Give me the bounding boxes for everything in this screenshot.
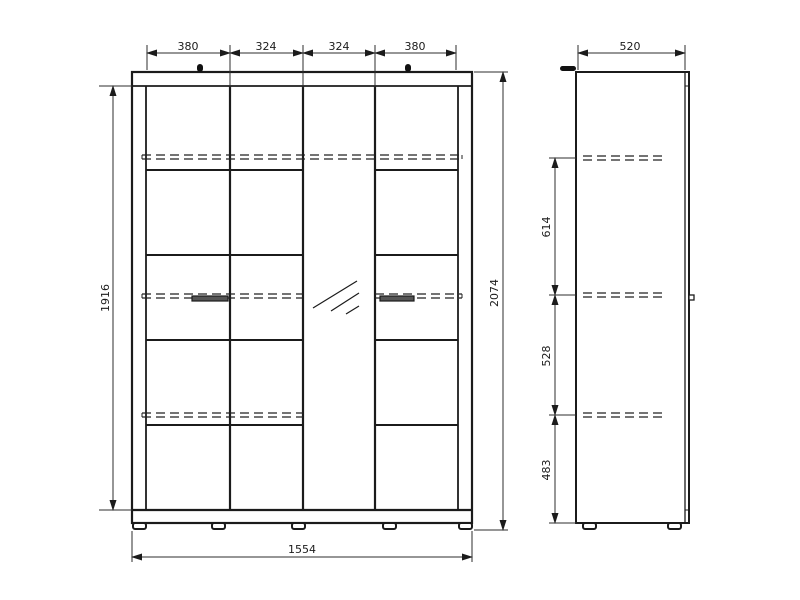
top-fitting-right: [405, 64, 411, 72]
right-door-handle: [380, 296, 414, 301]
dim-label-380-right: 380: [405, 40, 426, 53]
dim-label-1916: 1916: [99, 284, 112, 312]
left-door-handle: [192, 296, 228, 301]
dim-label-483: 483: [540, 460, 553, 481]
foot: [212, 523, 225, 529]
top-fitting-left: [197, 64, 203, 72]
mirror-slash: [346, 306, 359, 314]
side-hidden-shelves: [583, 156, 663, 417]
dim-label-614: 614: [540, 217, 553, 238]
technical-drawing-canvas: 380 324 324 380 1916 2074 1554: [0, 0, 800, 600]
side-top-fitting: [560, 66, 576, 71]
side-view: [560, 66, 694, 529]
foot: [459, 523, 472, 529]
foot: [383, 523, 396, 529]
dim-label-1554: 1554: [288, 543, 316, 556]
dim-label-520: 520: [620, 40, 641, 53]
foot: [668, 523, 681, 529]
foot: [133, 523, 146, 529]
front-view: [132, 64, 472, 529]
dim-label-324-left: 324: [256, 40, 277, 53]
mirror-glass-hatching: [313, 281, 359, 314]
dim-label-528: 528: [540, 346, 553, 367]
dim-label-324-right: 324: [329, 40, 350, 53]
dim-label-2074: 2074: [488, 279, 501, 307]
foot: [292, 523, 305, 529]
dim-label-380-left: 380: [178, 40, 199, 53]
mirror-slash: [313, 281, 357, 308]
side-door-handle: [689, 295, 694, 300]
side-dimensions: 520 614 528 483: [540, 40, 685, 523]
wardrobe-dimension-drawing: 380 324 324 380 1916 2074 1554: [0, 0, 800, 600]
foot: [583, 523, 596, 529]
